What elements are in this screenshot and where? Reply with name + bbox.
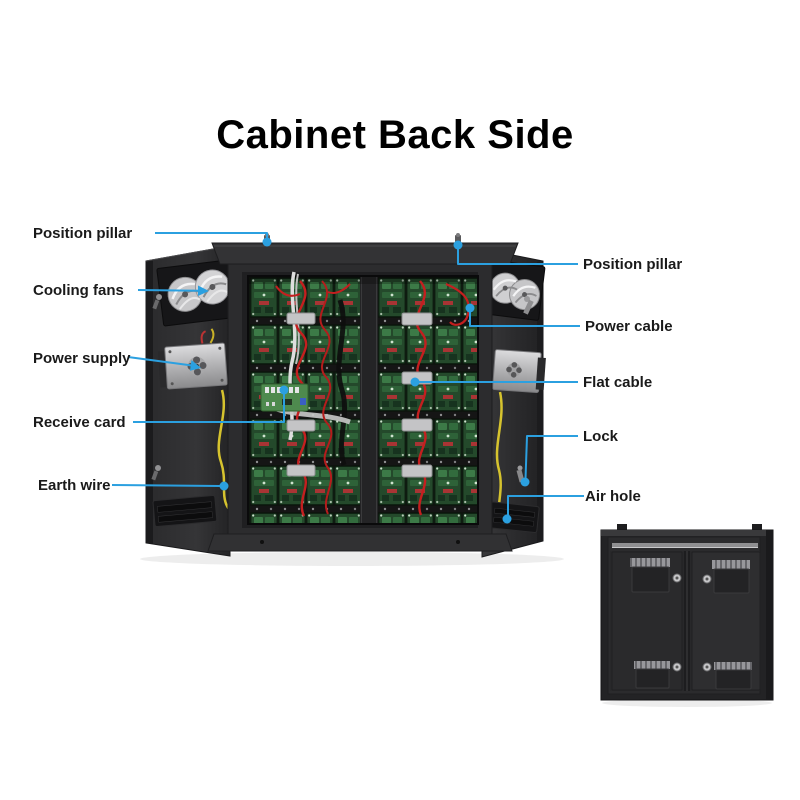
left-door-vent xyxy=(153,495,217,526)
cabinet-bottom-bar xyxy=(208,534,512,551)
closed-cabinet-top-strip xyxy=(612,543,758,547)
label-flat-cable: Flat cable xyxy=(583,374,652,391)
label-position-pillar-right: Position pillar xyxy=(583,256,682,273)
label-power-cable: Power cable xyxy=(585,318,673,335)
label-lock: Lock xyxy=(583,428,618,445)
cabinet-frame xyxy=(212,233,518,534)
power-supply-right xyxy=(493,350,547,393)
door-screw xyxy=(156,294,162,300)
label-air-hole: Air hole xyxy=(585,488,641,505)
label-earth-wire: Earth wire xyxy=(38,477,111,494)
door-screw xyxy=(155,465,161,471)
label-receive-card: Receive card xyxy=(33,414,126,431)
open-cabinet-photo xyxy=(140,233,564,566)
label-position-pillar-left: Position pillar xyxy=(33,225,132,242)
lock-pin xyxy=(518,466,523,471)
diagram-page: Cabinet Back Side xyxy=(0,0,800,800)
label-power-supply: Power supply xyxy=(33,350,131,367)
right-door-vent-air-hole xyxy=(489,502,539,533)
closed-cabinet-photo xyxy=(601,524,773,707)
cabinet-shadow xyxy=(140,552,564,566)
cabinet-diagram-artwork xyxy=(0,0,800,800)
cooling-fans-left xyxy=(157,260,236,326)
label-cooling-fans: Cooling fans xyxy=(33,282,124,299)
center-divider xyxy=(360,277,378,524)
